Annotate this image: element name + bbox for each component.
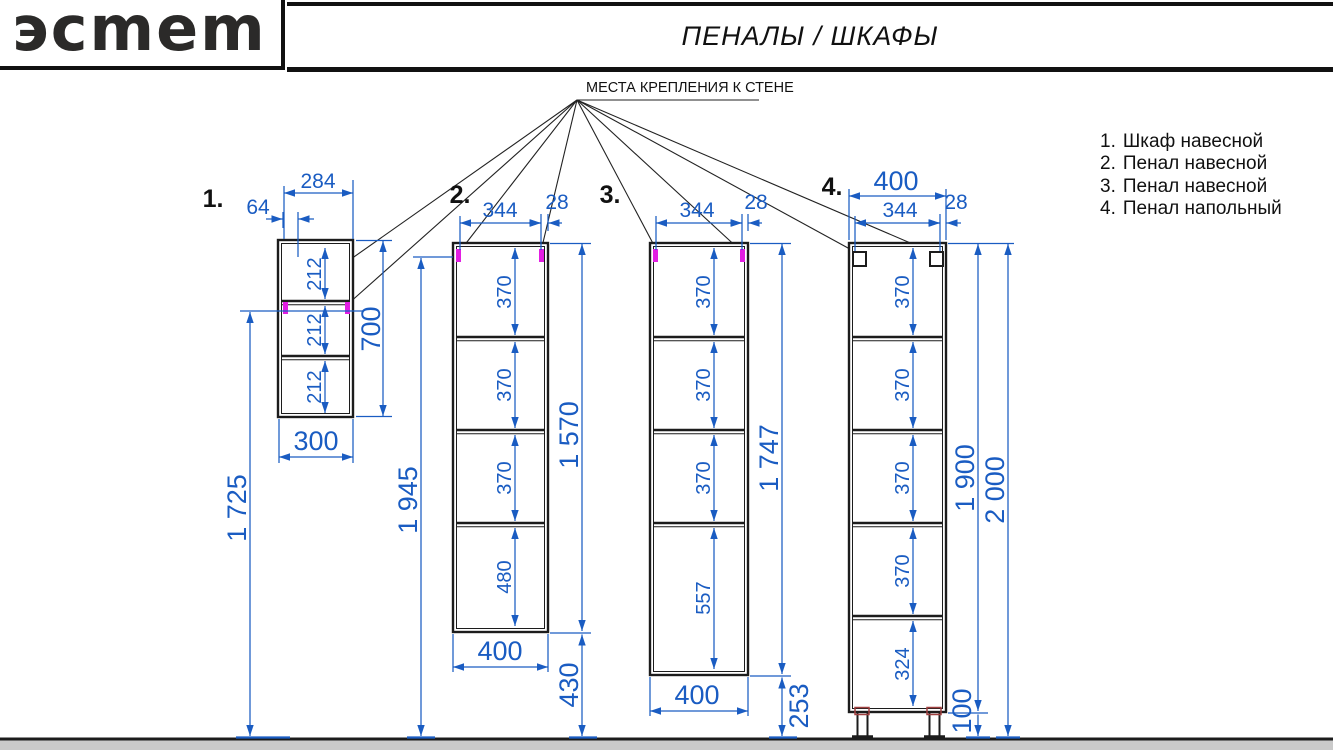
dim-width: 300 <box>293 426 338 456</box>
dim-compartment: 370 <box>892 275 914 308</box>
floor <box>0 739 1333 750</box>
cabinet-1-number: 1. <box>203 185 224 213</box>
dim-height: 1 747 <box>754 424 784 492</box>
dim-leg-height: 100 <box>947 688 977 733</box>
drawing-sheet: эcmem ПЕНАЛЫ / ШКАФЫ 1.Шкаф навесной 2.П… <box>0 0 1333 750</box>
dim-floor-gap: 253 <box>784 683 814 728</box>
dim-compartment: 370 <box>693 275 715 308</box>
dim-mount-to-floor: 1 725 <box>222 474 252 542</box>
wall-mount-clip-icon <box>539 249 544 262</box>
dim-total-height: 2 000 <box>980 456 1010 524</box>
dim-compartment: 324 <box>892 647 914 680</box>
dim-floor-gap: 430 <box>554 662 584 707</box>
dim-compartment: 370 <box>494 275 516 308</box>
dim-height: 1 900 <box>950 444 980 512</box>
dim-mount-offset: 64 <box>246 196 270 219</box>
dim-mount-edge: 28 <box>744 191 767 214</box>
dim-mount-span: 344 <box>882 199 917 222</box>
dim-compartment: 212 <box>304 370 326 403</box>
dim-top-width: 400 <box>873 166 918 196</box>
dim-mount-edge: 28 <box>545 191 568 214</box>
dim-top-width: 284 <box>300 170 335 193</box>
wall-bracket-icon <box>853 252 866 266</box>
wall-mount-clip-icon <box>653 249 658 262</box>
dim-mount-to-floor: 1 945 <box>393 466 423 534</box>
wall-bracket-icon <box>930 252 943 266</box>
cabinet-2-tall-wall-unit: 2. 344 <box>393 181 597 738</box>
ground-hatch <box>0 741 1333 750</box>
dim-height: 1 570 <box>554 401 584 469</box>
dim-height: 700 <box>356 306 386 351</box>
dim-compartment: 370 <box>892 554 914 587</box>
cabinet-1-wall-cabinet: 1. 284 <box>203 170 392 738</box>
dim-compartment: 557 <box>693 581 715 614</box>
dim-compartment: 370 <box>494 368 516 401</box>
dim-mount-span: 344 <box>679 199 714 222</box>
dim-compartment: 370 <box>494 461 516 494</box>
cabinet-3-number: 3. <box>600 181 621 209</box>
cabinet-4-floor-standing-unit: 4. <box>822 166 1020 738</box>
dim-mount-edge: 28 <box>944 191 967 214</box>
cabinet-3-tall-wall-unit: 3. 344 28 <box>600 181 814 738</box>
cabinet-2-number: 2. <box>450 181 471 209</box>
dim-mount-span: 344 <box>482 199 517 222</box>
dim-width: 400 <box>477 636 522 666</box>
wall-mount-clip-icon <box>283 302 288 314</box>
dim-compartment: 212 <box>304 313 326 346</box>
cabinet-4-number: 4. <box>822 173 843 201</box>
dim-compartment: 370 <box>693 461 715 494</box>
dim-width: 400 <box>674 680 719 710</box>
dim-compartment: 370 <box>892 368 914 401</box>
dim-compartment: 480 <box>494 560 516 593</box>
wall-mount-clip-icon <box>345 302 350 314</box>
dim-compartment: 370 <box>693 368 715 401</box>
wall-mount-clip-icon <box>456 249 461 262</box>
wall-mount-label: МЕСТА КРЕПЛЕНИЯ К СТЕНЕ <box>586 80 794 96</box>
dim-compartment: 212 <box>304 257 326 290</box>
dim-compartment: 370 <box>892 461 914 494</box>
technical-drawing: МЕСТА КРЕПЛЕНИЯ К СТЕНЕ 1. <box>0 0 1333 750</box>
wall-mount-clip-icon <box>740 249 745 262</box>
